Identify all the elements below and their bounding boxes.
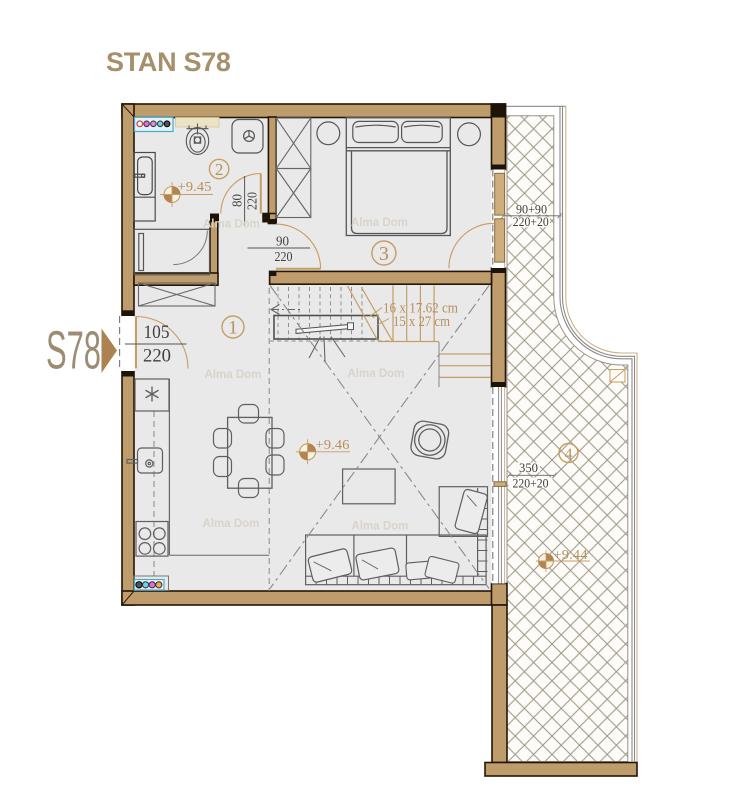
svg-text:2: 2 <box>215 160 224 179</box>
svg-text:Alma Dom: Alma Dom <box>351 217 408 229</box>
svg-text:Alma Dom: Alma Dom <box>203 219 260 231</box>
svg-text:105: 105 <box>144 323 170 343</box>
svg-text:220+20: 220+20 <box>513 476 549 490</box>
svg-text:90: 90 <box>276 234 289 249</box>
svg-text:STAN S78: STAN S78 <box>106 47 231 77</box>
svg-text:S78: S78 <box>46 321 101 381</box>
svg-text:+9.46: +9.46 <box>316 438 350 453</box>
svg-text:4: 4 <box>565 446 573 463</box>
svg-text:+9.45: +9.45 <box>178 180 212 195</box>
svg-text:Alma Dom: Alma Dom <box>352 521 409 533</box>
svg-text:350: 350 <box>519 460 538 475</box>
svg-text:220+20: 220+20 <box>513 215 549 229</box>
svg-text:Alma Dom: Alma Dom <box>348 368 405 380</box>
svg-text:220: 220 <box>143 347 171 367</box>
svg-text:Alma Dom: Alma Dom <box>205 369 262 381</box>
svg-text:1: 1 <box>228 318 238 339</box>
svg-text:3: 3 <box>379 243 389 265</box>
svg-text:15 x 27 cm: 15 x 27 cm <box>393 314 450 330</box>
svg-text:Alma Dom: Alma Dom <box>203 518 260 530</box>
svg-text:220: 220 <box>275 250 293 265</box>
svg-text:80: 80 <box>231 194 246 207</box>
svg-text:+9.44: +9.44 <box>554 548 588 563</box>
svg-text:220: 220 <box>246 192 261 210</box>
